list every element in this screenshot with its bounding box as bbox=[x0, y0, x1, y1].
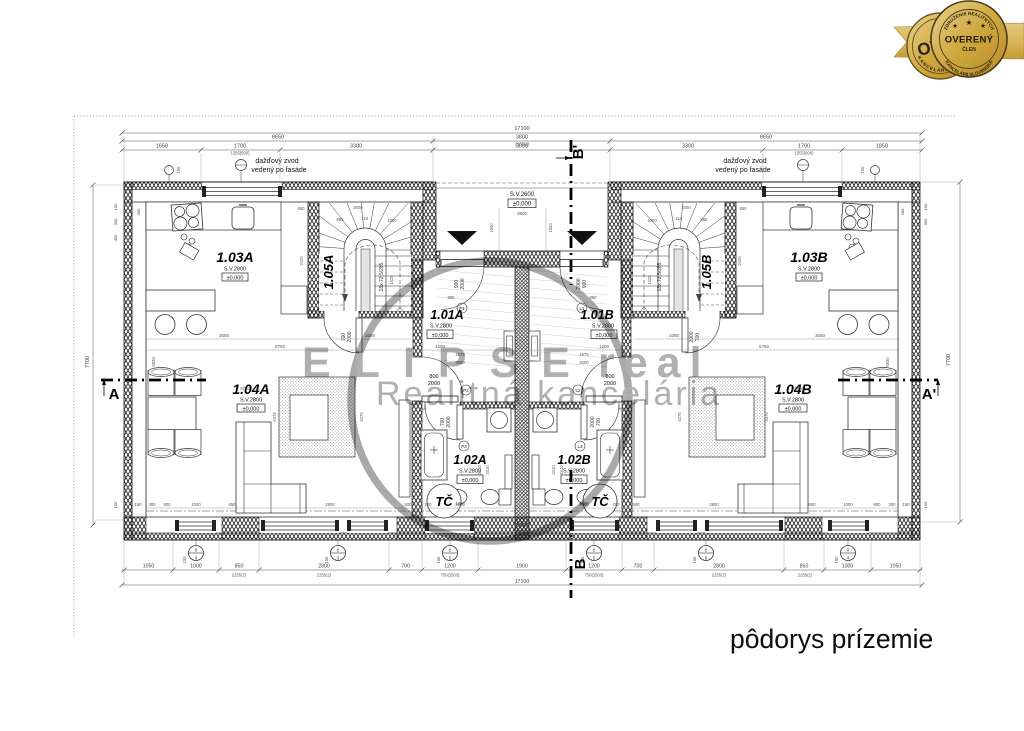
svg-text:1000: 1000 bbox=[190, 564, 202, 570]
svg-text:B': B' bbox=[570, 145, 587, 159]
svg-text:200: 200 bbox=[425, 502, 433, 507]
svg-text:A: A bbox=[109, 386, 120, 403]
svg-text:2255(2): 2255(2) bbox=[232, 573, 247, 578]
svg-text:0: 0 bbox=[593, 548, 596, 554]
svg-text:±0,000: ±0,000 bbox=[513, 202, 532, 208]
svg-text:1200: 1200 bbox=[588, 564, 600, 570]
svg-text:S.V.2800: S.V.2800 bbox=[430, 324, 452, 330]
svg-text:150: 150 bbox=[113, 501, 118, 508]
svg-text:700: 700 bbox=[596, 418, 602, 427]
svg-text:3300: 3300 bbox=[350, 144, 362, 150]
svg-text:4375: 4375 bbox=[764, 412, 769, 422]
svg-text:3550: 3550 bbox=[219, 333, 230, 338]
svg-text:150: 150 bbox=[923, 501, 928, 508]
svg-text:1355(900): 1355(900) bbox=[794, 151, 814, 156]
svg-text:2425: 2425 bbox=[737, 256, 742, 266]
svg-text:1500: 1500 bbox=[489, 223, 494, 233]
svg-text:885: 885 bbox=[701, 217, 709, 222]
svg-text:4375: 4375 bbox=[359, 412, 364, 422]
svg-text:300: 300 bbox=[923, 218, 928, 225]
svg-text:1000: 1000 bbox=[843, 502, 853, 507]
svg-text:1000: 1000 bbox=[387, 218, 397, 223]
svg-text:6750: 6750 bbox=[240, 386, 250, 391]
svg-text:2000: 2000 bbox=[460, 278, 466, 289]
svg-text:700: 700 bbox=[401, 564, 410, 570]
svg-text:1355(900): 1355(900) bbox=[230, 151, 250, 156]
svg-text:2410: 2410 bbox=[551, 465, 556, 475]
svg-text:A': A' bbox=[922, 386, 936, 403]
svg-text:800: 800 bbox=[164, 502, 172, 507]
svg-text:5: 5 bbox=[593, 556, 596, 562]
svg-text:18x 72,5/285: 18x 72,5/285 bbox=[657, 262, 663, 291]
svg-text:0: 0 bbox=[449, 548, 452, 554]
svg-text:150: 150 bbox=[860, 166, 865, 174]
svg-text:300: 300 bbox=[889, 502, 897, 507]
svg-text:2800: 2800 bbox=[325, 502, 335, 507]
svg-text:S.V.2800: S.V.2800 bbox=[782, 398, 804, 404]
svg-text:150: 150 bbox=[324, 556, 329, 564]
svg-text:300: 300 bbox=[900, 208, 905, 215]
svg-text:150: 150 bbox=[113, 203, 118, 210]
svg-text:dažďový zvod: dažďový zvod bbox=[255, 158, 298, 165]
svg-text:P3: P3 bbox=[461, 444, 467, 449]
svg-text:Realitná kancelária: Realitná kancelária bbox=[376, 375, 722, 413]
svg-text:vedený po fasáde: vedený po fasáde bbox=[715, 167, 770, 174]
svg-text:±0,000: ±0,000 bbox=[785, 407, 802, 413]
svg-text:1.02B: 1.02B bbox=[557, 453, 590, 467]
svg-text:4375: 4375 bbox=[272, 412, 277, 422]
svg-text:L1: L1 bbox=[579, 306, 585, 311]
svg-text:1200: 1200 bbox=[444, 564, 456, 570]
svg-text:2000: 2000 bbox=[681, 205, 691, 210]
svg-text:OVERENÝ: OVERENÝ bbox=[945, 34, 994, 46]
svg-text:S.V.2800: S.V.2800 bbox=[563, 469, 585, 475]
svg-text:18x 72,5/285: 18x 72,5/285 bbox=[379, 262, 385, 291]
svg-text:650: 650 bbox=[229, 502, 237, 507]
svg-text:885: 885 bbox=[337, 217, 345, 222]
svg-text:1500: 1500 bbox=[548, 223, 553, 233]
svg-text:650: 650 bbox=[298, 206, 306, 211]
svg-text:0: 0 bbox=[705, 548, 708, 554]
svg-text:7700: 7700 bbox=[85, 356, 91, 368]
svg-text:B: B bbox=[572, 558, 589, 569]
svg-text:1425: 1425 bbox=[647, 275, 652, 285]
svg-text:2410: 2410 bbox=[559, 465, 564, 475]
svg-text:150: 150 bbox=[182, 556, 187, 564]
svg-text:750(1503): 750(1503) bbox=[440, 573, 460, 578]
svg-text:2255(2): 2255(2) bbox=[317, 573, 332, 578]
svg-text:2000: 2000 bbox=[353, 205, 363, 210]
svg-text:1900: 1900 bbox=[516, 564, 528, 570]
svg-text:0: 0 bbox=[195, 548, 198, 554]
svg-text:1850: 1850 bbox=[876, 144, 888, 150]
svg-text:S.V.2600: S.V.2600 bbox=[510, 192, 535, 198]
svg-text:±0,000: ±0,000 bbox=[227, 276, 244, 282]
svg-text:dažďový zvod: dažďový zvod bbox=[723, 158, 766, 165]
svg-text:1.05A: 1.05A bbox=[321, 255, 336, 290]
svg-text:2800: 2800 bbox=[713, 564, 725, 570]
svg-text:P1: P1 bbox=[459, 306, 465, 311]
svg-text:6830: 6830 bbox=[151, 357, 156, 367]
svg-text:S.V.2800: S.V.2800 bbox=[798, 267, 820, 273]
svg-text:3800: 3800 bbox=[516, 135, 528, 141]
svg-text:0: 0 bbox=[337, 548, 340, 554]
svg-text:3300: 3300 bbox=[682, 144, 694, 150]
svg-text:6650: 6650 bbox=[760, 135, 772, 141]
svg-text:1700: 1700 bbox=[798, 144, 810, 150]
svg-text:115: 115 bbox=[362, 216, 369, 221]
svg-text:1.03B: 1.03B bbox=[790, 249, 827, 265]
svg-text:3550: 3550 bbox=[815, 333, 826, 338]
svg-text:1.03A: 1.03A bbox=[216, 249, 253, 265]
svg-text:1425: 1425 bbox=[389, 275, 394, 285]
svg-text:1.05B: 1.05B bbox=[699, 255, 714, 290]
svg-text:S.V.2800: S.V.2800 bbox=[240, 398, 262, 404]
svg-text:700: 700 bbox=[634, 564, 643, 570]
svg-text:800: 800 bbox=[874, 502, 882, 507]
svg-text:1000: 1000 bbox=[842, 564, 854, 570]
svg-text:3: 3 bbox=[337, 556, 340, 562]
svg-text:2000: 2000 bbox=[590, 416, 596, 427]
svg-text:7700: 7700 bbox=[946, 354, 952, 366]
svg-text:5750: 5750 bbox=[275, 344, 286, 349]
svg-text:500: 500 bbox=[633, 502, 641, 507]
svg-text:115: 115 bbox=[676, 216, 683, 221]
svg-text:850: 850 bbox=[800, 564, 809, 570]
svg-text:±0,000: ±0,000 bbox=[462, 478, 479, 484]
svg-text:150: 150 bbox=[903, 502, 911, 507]
svg-text:TČ: TČ bbox=[435, 494, 453, 509]
svg-text:2000: 2000 bbox=[455, 502, 465, 507]
svg-text:150: 150 bbox=[692, 556, 697, 564]
svg-text:2000: 2000 bbox=[446, 416, 452, 427]
svg-text:1.02A: 1.02A bbox=[453, 453, 486, 467]
svg-text:0: 0 bbox=[847, 548, 850, 554]
svg-text:3: 3 bbox=[195, 556, 198, 562]
svg-text:4375: 4375 bbox=[677, 412, 682, 422]
svg-text:450: 450 bbox=[113, 234, 118, 241]
svg-text:17100: 17100 bbox=[515, 579, 530, 585]
svg-text:17100: 17100 bbox=[514, 126, 529, 132]
svg-text:1.04A: 1.04A bbox=[232, 381, 269, 397]
svg-text:2955(2): 2955(2) bbox=[515, 142, 530, 147]
svg-text:850: 850 bbox=[235, 564, 244, 570]
svg-text:3800: 3800 bbox=[517, 211, 528, 216]
svg-text:±0,000: ±0,000 bbox=[801, 276, 818, 282]
svg-text:150: 150 bbox=[834, 556, 839, 564]
svg-text:★: ★ bbox=[980, 22, 986, 30]
svg-text:ČLEN: ČLEN bbox=[962, 46, 976, 53]
svg-text:200: 200 bbox=[613, 502, 621, 507]
svg-text:650: 650 bbox=[740, 206, 748, 211]
svg-text:★: ★ bbox=[952, 22, 958, 30]
svg-text:2410: 2410 bbox=[477, 465, 482, 475]
svg-text:2800: 2800 bbox=[709, 502, 719, 507]
svg-text:1650: 1650 bbox=[156, 144, 168, 150]
svg-text:5750: 5750 bbox=[759, 344, 770, 349]
svg-text:pôdorys prízemie: pôdorys prízemie bbox=[730, 624, 933, 654]
svg-text:900: 900 bbox=[582, 280, 588, 289]
svg-text:4: 4 bbox=[847, 556, 850, 562]
svg-text:1000: 1000 bbox=[647, 218, 657, 223]
svg-text:300: 300 bbox=[136, 208, 141, 215]
svg-text:150: 150 bbox=[923, 203, 928, 210]
svg-text:500: 500 bbox=[405, 502, 413, 507]
svg-text:880: 880 bbox=[448, 295, 456, 300]
svg-text:2410: 2410 bbox=[485, 465, 490, 475]
svg-text:±0,000: ±0,000 bbox=[243, 407, 260, 413]
svg-text:★: ★ bbox=[966, 18, 973, 27]
svg-text:1080: 1080 bbox=[669, 333, 680, 338]
svg-text:750(1503): 750(1503) bbox=[584, 573, 604, 578]
svg-text:±0,000: ±0,000 bbox=[566, 478, 583, 484]
svg-text:300: 300 bbox=[149, 502, 157, 507]
svg-text:300: 300 bbox=[113, 218, 118, 225]
svg-text:1050: 1050 bbox=[143, 564, 155, 570]
svg-text:6: 6 bbox=[705, 556, 708, 562]
svg-text:150: 150 bbox=[176, 166, 181, 174]
svg-text:6830: 6830 bbox=[885, 357, 890, 367]
svg-text:2425: 2425 bbox=[299, 256, 304, 266]
svg-text:6650: 6650 bbox=[272, 135, 284, 141]
svg-text:1.04B: 1.04B bbox=[774, 381, 811, 397]
svg-text:150: 150 bbox=[135, 502, 143, 507]
svg-text:1000: 1000 bbox=[191, 502, 201, 507]
svg-text:L3: L3 bbox=[577, 444, 583, 449]
svg-text:5: 5 bbox=[449, 556, 452, 562]
svg-text:1700: 1700 bbox=[234, 144, 246, 150]
svg-text:1050: 1050 bbox=[890, 564, 902, 570]
svg-text:650: 650 bbox=[809, 502, 817, 507]
svg-text:vedený po fasáde: vedený po fasáde bbox=[251, 167, 306, 174]
svg-text:2255(2): 2255(2) bbox=[798, 573, 813, 578]
svg-text:2255(2): 2255(2) bbox=[712, 573, 727, 578]
svg-text:S.V.2800: S.V.2800 bbox=[224, 267, 246, 273]
svg-text:6750: 6750 bbox=[794, 386, 804, 391]
svg-text:150: 150 bbox=[436, 556, 441, 564]
